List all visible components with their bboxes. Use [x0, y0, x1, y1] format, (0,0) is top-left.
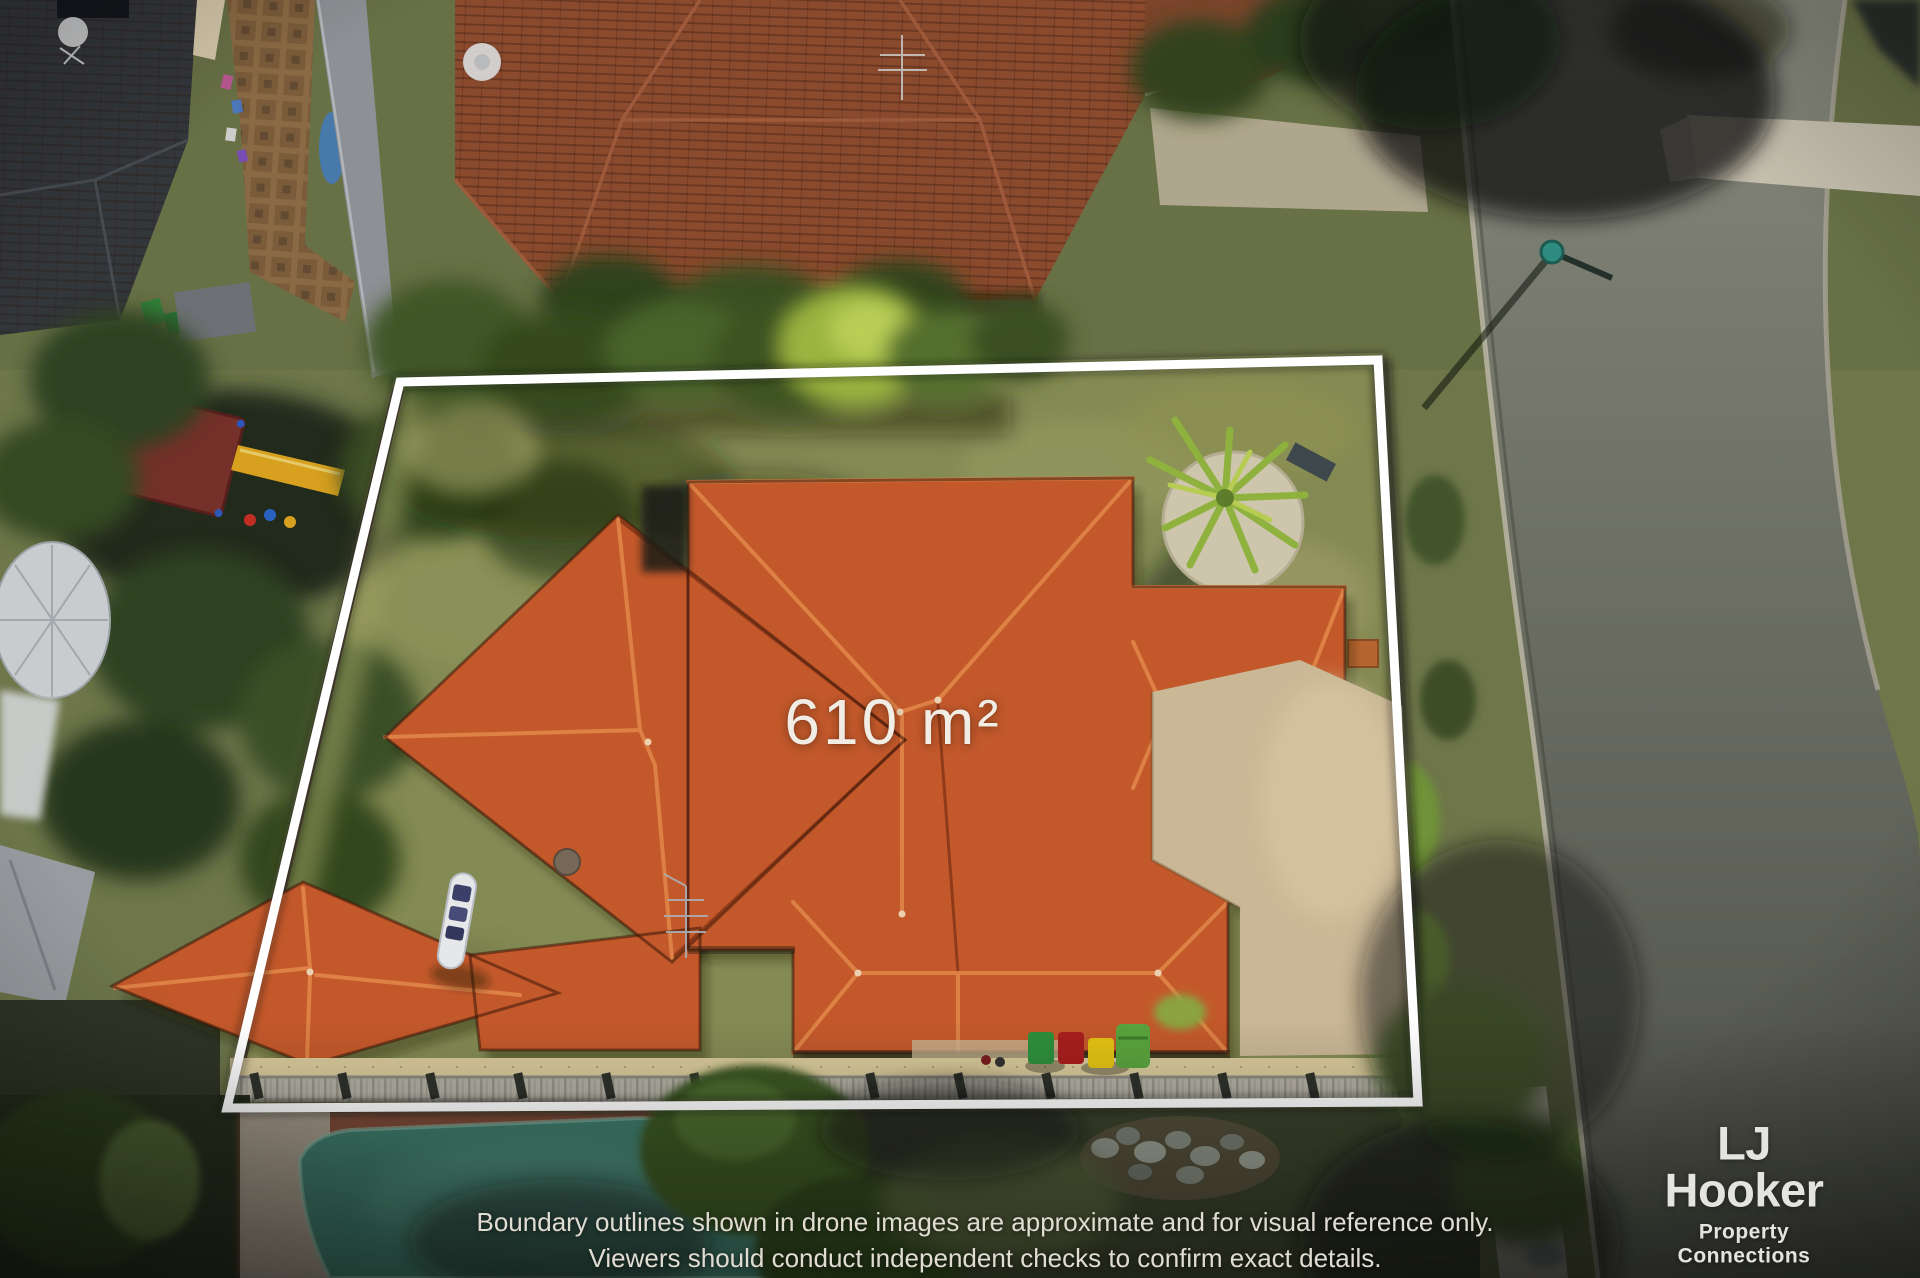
disclaimer: Boundary outlines shown in drone images …	[477, 1204, 1494, 1276]
area-label: 610 m²	[784, 685, 1001, 759]
brand-tagline: Property Connections	[1656, 1221, 1832, 1269]
aerial-photo	[0, 0, 1920, 1278]
brand-logo: LJ Hooker Property Connections	[1656, 1120, 1832, 1269]
vignette	[0, 0, 1920, 1278]
drone-photo-scene: 610 m² Boundary outlines shown in drone …	[0, 0, 1920, 1278]
disclaimer-line-2: Viewers should conduct independent check…	[477, 1240, 1494, 1276]
disclaimer-line-1: Boundary outlines shown in drone images …	[477, 1204, 1494, 1240]
brand-name: LJ Hooker	[1656, 1120, 1832, 1214]
